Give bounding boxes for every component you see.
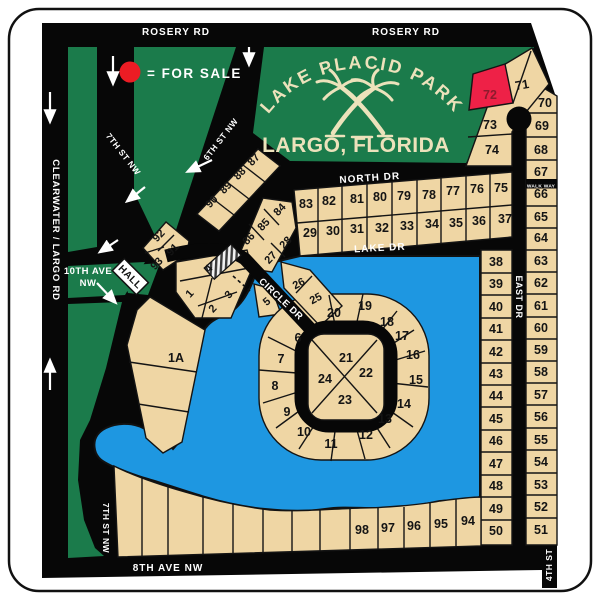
lot-72-label: 72 [483,88,497,102]
lot-20-label: 20 [327,306,341,320]
lot-1A-label: 1A [168,351,184,365]
legend-for-sale-label: = FOR SALE [147,66,242,81]
lot-13-label: 13 [378,412,392,426]
lot-61-label: 61 [534,299,548,313]
park-map: HALL = FOR SALE LAKE PLACID PARK LARGO, … [0,0,600,600]
lot-58-label: 58 [534,365,548,379]
cul-de-sac [507,107,532,132]
lot-32-label: 32 [375,221,389,235]
tenth-ave-label-line2: NW [80,278,97,289]
lot-19-label: 19 [358,299,372,313]
lot-11-label: 11 [324,437,337,451]
lot-76-label: 76 [470,182,484,196]
lot-60-label: 60 [534,321,548,335]
fourth-st-label: 4TH ST [544,549,554,582]
lot-97-label: 97 [381,521,395,535]
lot-63-label: 63 [534,254,548,268]
rosery-rd-left-label: ROSERY RD [142,27,210,38]
lot-68-label: 68 [534,143,548,157]
lot-38-label: 38 [489,255,503,269]
lot-73-label: 73 [483,118,497,132]
for-sale-dot-icon [120,62,141,83]
lot-79-label: 79 [397,189,411,203]
lot-56-label: 56 [534,410,548,424]
lot-9-label: 9 [284,405,291,419]
eighth-ave-label: 8TH AVE NW [133,563,204,574]
lot-69-label: 69 [535,119,549,133]
lot-30-label: 30 [326,224,340,238]
lot-59-label: 59 [534,343,548,357]
lot-22-label: 22 [359,366,373,380]
lot-40-label: 40 [489,300,503,314]
lot-52-label: 52 [534,500,548,514]
lot-41-label: 41 [489,322,503,336]
lot-74-label: 74 [485,143,499,157]
lot-57-label: 57 [534,388,548,402]
lot-31-label: 31 [350,222,364,236]
lot-43-label: 43 [489,367,503,381]
lot-15-label: 15 [409,373,423,387]
lot-29-label: 29 [303,226,317,240]
lot-98-label: 98 [355,523,369,537]
clearwater-largo-rd-label: CLEARWATER / LARGO RD [50,159,61,301]
lot-95-label: 95 [434,517,448,531]
lot-50-label: 50 [489,524,503,538]
lot-55-label: 55 [534,433,548,447]
lot-8-label: 8 [272,379,279,393]
lot-49-label: 49 [489,502,503,516]
lot-62-label: 62 [534,276,548,290]
lot-96-label: 96 [407,519,421,533]
lot-64-label: 64 [534,231,548,245]
lot-66-label: 66 [534,187,548,201]
lot-23-label: 23 [338,393,352,407]
east-dr-label: EAST DR [514,275,524,318]
seventh-st-bottom-label: 7TH ST NW [101,503,111,554]
lot-48-label: 48 [489,479,503,493]
lot-14-label: 14 [397,397,411,411]
lot-34-label: 34 [425,217,439,231]
lot-51-label: 51 [534,523,548,537]
lot-83-label: 83 [299,197,313,211]
lot-17-label: 17 [395,329,409,343]
lot-78-label: 78 [422,188,436,202]
lot-71-label: 71 [514,77,530,93]
lot-75-label: 75 [494,181,508,195]
lot-36-label: 36 [472,214,486,228]
lot-7-label: 7 [278,352,285,366]
lot-53-label: 53 [534,478,548,492]
rosery-rd-right-label: ROSERY RD [372,27,440,38]
lot-24-label: 24 [318,372,332,386]
lot-37-label: 37 [498,212,512,226]
lot-65-label: 65 [534,210,548,224]
lot-82-label: 82 [322,194,336,208]
lot-81-label: 81 [350,192,364,206]
lot-18-label: 18 [380,315,394,329]
lot-10-label: 10 [297,425,311,439]
lot-39-label: 39 [489,277,503,291]
lot-70-label: 70 [538,96,552,110]
city-label: LARGO, FLORIDA [262,134,450,157]
lot-67-label: 67 [534,165,548,179]
tenth-ave-label-line1: 10TH AVE [64,266,112,277]
lot-47-label: 47 [489,457,503,471]
lot-46-label: 46 [489,434,503,448]
lot-35-label: 35 [449,216,463,230]
lot-80-label: 80 [373,190,387,204]
lot-44-label: 44 [489,389,503,403]
lot-16-label: 16 [406,348,420,362]
lot-54-label: 54 [534,455,548,469]
lot-12-label: 12 [359,428,373,442]
lot-6-label: 6 [295,331,302,345]
lot-77-label: 77 [446,184,460,198]
lot-33-label: 33 [400,219,414,233]
lot-45-label: 45 [489,412,503,426]
lot-42-label: 42 [489,345,503,359]
lot-94-label: 94 [461,514,475,528]
lot-21-label: 21 [339,351,353,365]
